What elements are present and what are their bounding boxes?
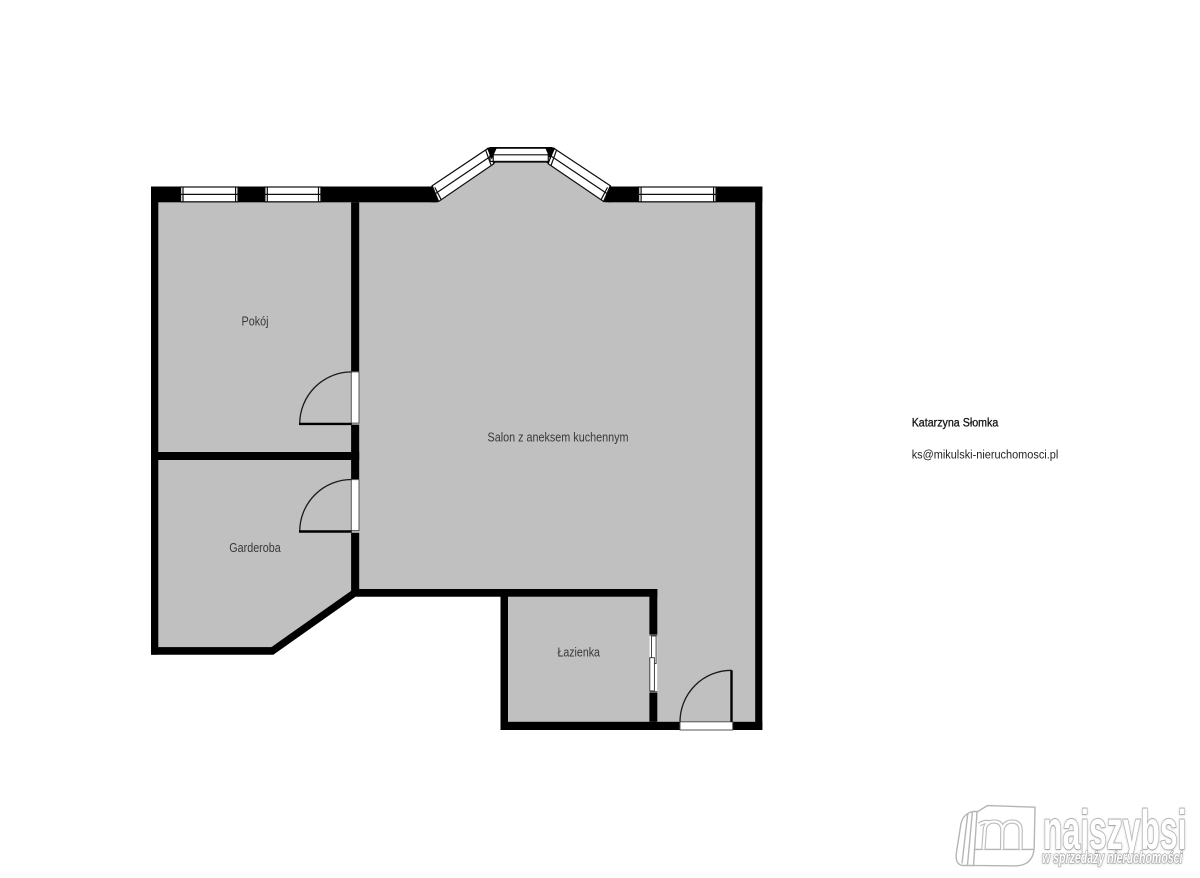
svg-text:w sprzedaży nieruchomości: w sprzedaży nieruchomości: [1042, 849, 1183, 867]
svg-text:Salon z aneksem kuchennym: Salon z aneksem kuchennym: [488, 431, 629, 445]
svg-text:ks@mikulski-nieruchomosci.pl: ks@mikulski-nieruchomosci.pl: [912, 447, 1059, 461]
svg-text:Łazienka: Łazienka: [557, 646, 600, 660]
svg-text:Garderoba: Garderoba: [229, 541, 280, 555]
svg-text:Pokój: Pokój: [242, 315, 269, 329]
svg-text:Katarzyna Słomka: Katarzyna Słomka: [912, 416, 999, 430]
